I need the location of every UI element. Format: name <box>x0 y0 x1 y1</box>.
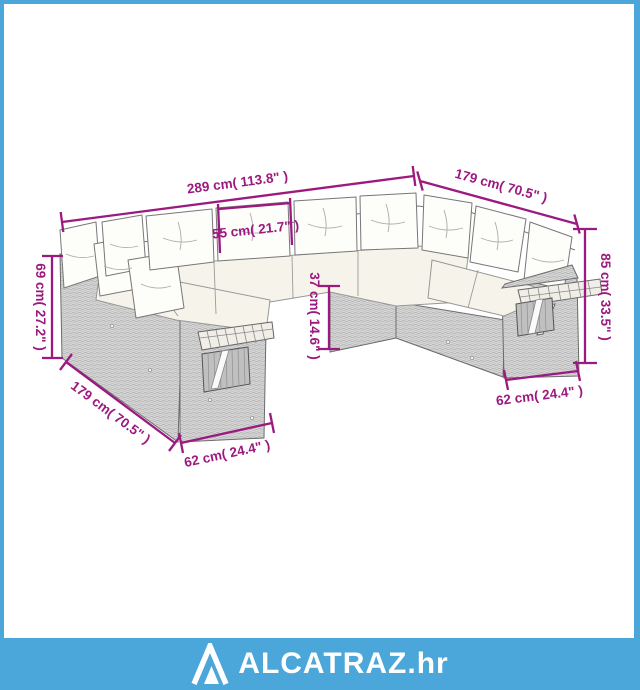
dimension-label-left-end-width: 62 cm( 24.4" ) <box>183 437 272 470</box>
left-wing-cushion <box>60 222 100 288</box>
mountain-triangle-icon <box>191 643 229 685</box>
brand-wordmark: ALCATRAZ.hr <box>238 647 448 681</box>
brand-banner: ALCATRAZ.hr <box>0 638 640 690</box>
dimension-label-right-wing-depth: 179 cm( 70.5" ) <box>453 166 549 205</box>
dimension-left-back-height: 69 cm( 27.2" ) <box>33 256 63 358</box>
dimension-label-total-width: 289 cm( 113.8" ) <box>186 169 289 197</box>
back-cushion <box>146 209 214 270</box>
back-cushion <box>294 197 357 255</box>
right-arm-inner-face <box>396 302 505 377</box>
dimension-label-left-back-height: 69 cm( 27.2" ) <box>33 263 48 350</box>
dimension-label-seat-height: 37 cm( 14.6" ) <box>307 272 322 359</box>
product-image-page: 289 cm( 113.8" ) 179 cm( 70.5" ) 55 cm( … <box>0 0 640 690</box>
product-dimension-diagram: 289 cm( 113.8" ) 179 cm( 70.5" ) 55 cm( … <box>0 0 640 640</box>
dimension-label-total-height: 85 cm( 33.5" ) <box>598 253 613 340</box>
